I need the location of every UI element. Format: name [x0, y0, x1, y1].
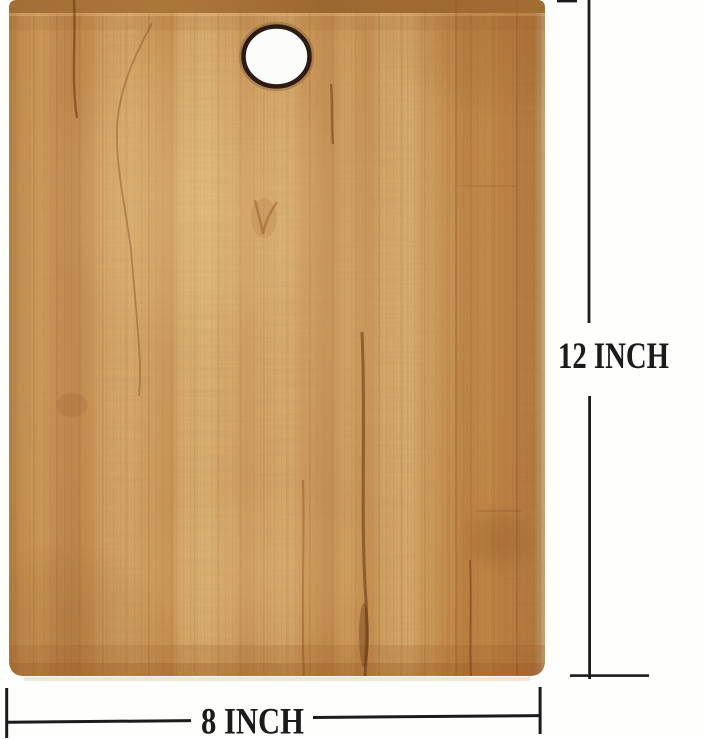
svg-text:8 INCH: 8 INCH: [201, 702, 304, 739]
svg-text:12 INCH: 12 INCH: [558, 335, 669, 376]
